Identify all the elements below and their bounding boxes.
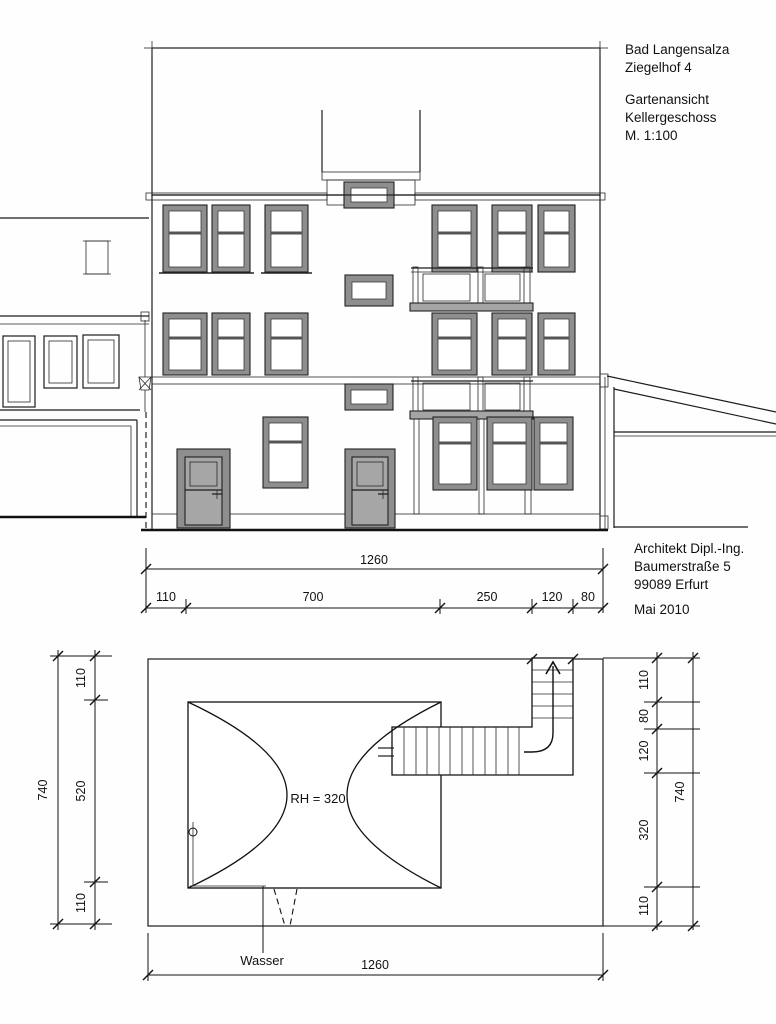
neighbor-window	[83, 335, 119, 388]
architectural-sheet: 1260 110 700 250 120 80	[0, 0, 776, 1024]
window	[432, 205, 477, 272]
dim-bottom-total: 1260	[361, 958, 389, 972]
dormer	[322, 110, 420, 208]
window	[265, 205, 308, 272]
title-level: Kellergeschoss	[625, 110, 717, 125]
balcony-lower	[410, 377, 533, 419]
dim-left-segment: 520	[74, 781, 88, 802]
dim-right-segment: 80	[637, 709, 651, 723]
dim-right-segment: 320	[637, 820, 651, 841]
neighbor-attic-window	[83, 241, 111, 274]
window	[433, 417, 477, 490]
entrance-door	[177, 449, 230, 528]
roof	[152, 48, 600, 195]
cornice-right	[415, 193, 605, 200]
dim-segment: 120	[542, 590, 563, 604]
architect-city: 99089 Erfurt	[634, 577, 709, 592]
window	[263, 417, 308, 488]
window	[432, 313, 477, 375]
stairwell-window	[345, 384, 393, 410]
window	[492, 313, 532, 375]
architect-role: Architekt Dipl.-Ing.	[634, 541, 744, 556]
right-neighbor-building	[607, 376, 776, 528]
window	[212, 313, 250, 375]
architect-street: Baumerstraße 5	[634, 559, 731, 574]
title-block: Bad Langensalza Ziegelhof 4 Gartenansich…	[625, 42, 730, 143]
water-label-group: Wasser	[240, 886, 284, 968]
plan-right-dimensions: 110 80 120 320 110 740	[603, 652, 700, 931]
neighbor-garage-door	[0, 420, 137, 517]
entrance-door	[345, 449, 395, 528]
architect-block: Architekt Dipl.-Ing. Baumerstraße 5 9908…	[634, 541, 744, 617]
dim-left-segment: 110	[74, 893, 88, 913]
title-scale: M. 1:100	[625, 128, 678, 143]
window	[534, 417, 573, 490]
dim-right-segment: 110	[637, 670, 651, 690]
window	[163, 313, 207, 375]
dim-left-segment: 110	[74, 668, 88, 688]
neighbor-window	[44, 336, 77, 388]
window	[538, 313, 575, 375]
drawing-date: Mai 2010	[634, 602, 690, 617]
title-view: Gartenansicht	[625, 92, 709, 107]
dim-left-total: 740	[36, 780, 50, 801]
neighbor-window	[3, 336, 35, 407]
main-building	[144, 41, 608, 530]
dim-segment: 700	[303, 590, 324, 604]
water-label: Wasser	[240, 953, 284, 968]
title-location: Bad Langensalza	[625, 42, 730, 57]
dim-right-total: 740	[673, 782, 687, 803]
cornice-left	[146, 193, 327, 200]
dim-segment: 80	[581, 590, 595, 604]
window	[487, 417, 532, 490]
floor-plan: RH = 320 Wasser 740 110 520	[36, 650, 700, 981]
window	[492, 205, 532, 272]
balcony-upper	[410, 267, 533, 311]
window	[212, 205, 250, 272]
left-neighbor-building	[0, 218, 151, 529]
window	[538, 205, 575, 272]
dim-segment: 250	[477, 590, 498, 604]
drain-dashed-lines	[274, 889, 297, 926]
plan-bottom-dimension: 1260	[143, 933, 608, 981]
dim-segment: 110	[156, 590, 176, 604]
elevation-drawing: 1260 110 700 250 120 80	[0, 41, 776, 614]
room-height-label: RH = 320	[290, 791, 345, 806]
title-address: Ziegelhof 4	[625, 60, 692, 75]
dim-right-segment: 120	[637, 741, 651, 762]
elevation-dimension-lines: 1260 110 700 250 120 80	[141, 548, 608, 614]
dim-total: 1260	[360, 553, 388, 567]
window	[265, 313, 308, 375]
downpipe-hopper	[139, 312, 151, 412]
window	[163, 205, 207, 272]
plan-left-dimensions: 740 110 520 110	[36, 650, 112, 930]
stairwell-window	[345, 275, 393, 306]
dim-right-segment: 110	[637, 896, 651, 916]
